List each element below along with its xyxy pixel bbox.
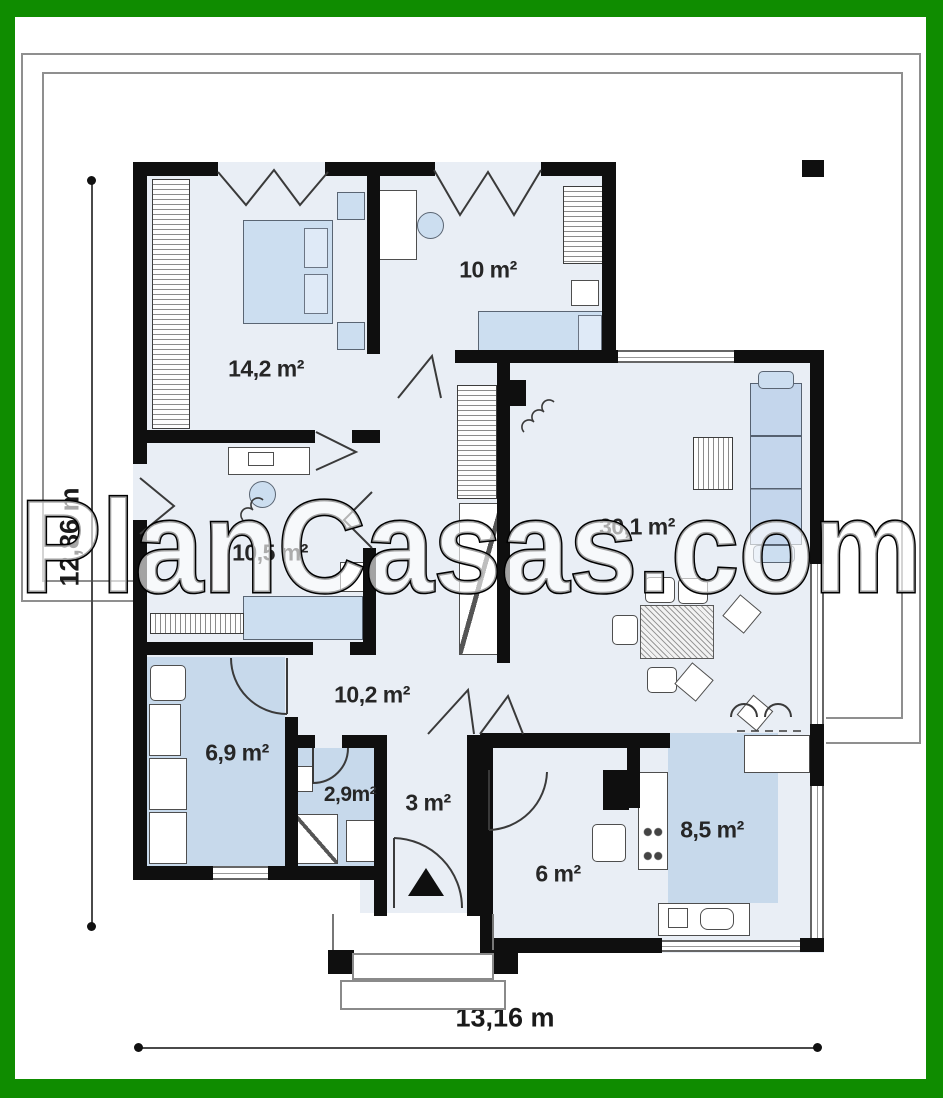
frame-top: [0, 0, 943, 17]
door-arc: [489, 770, 547, 830]
door-swing: [316, 432, 356, 470]
window-zigzag: [218, 170, 328, 205]
frame-left: [0, 0, 15, 1098]
room-label-kitchen: 8,5 m²: [680, 817, 743, 844]
room-label-bathroom: 6,9 m²: [205, 740, 268, 767]
frame-right: [926, 0, 943, 1098]
door-arc: [231, 658, 287, 714]
radiator-squiggle: [241, 498, 263, 520]
room-label-bedroom-2: 10 m²: [459, 257, 517, 284]
window-zigzag: [434, 170, 541, 215]
plan-symbols-overlay: [0, 0, 943, 1098]
frame-bottom: [0, 1079, 943, 1098]
radiator-squiggle: [522, 400, 554, 432]
room-label-bedroom-1: 14,2 m²: [228, 356, 304, 383]
room-label-vestibule: 3 m²: [405, 790, 450, 817]
bar-stool: [765, 704, 791, 717]
door-swing: [398, 356, 441, 398]
room-label-living-room: 30,1 m²: [599, 514, 675, 541]
room-label-utility: 6 m²: [535, 861, 580, 888]
room-label-hall: 10,2 m²: [334, 682, 410, 709]
bar-stool: [731, 704, 757, 717]
window-zigzag: [140, 478, 174, 534]
door-arc: [313, 748, 348, 783]
room-label-bedroom-3: 10,5 m²: [232, 540, 308, 567]
floor-plan-canvas: 12,86 m 13,16 m: [0, 0, 943, 1098]
door-arc: [394, 838, 462, 908]
door-swing: [428, 690, 474, 734]
door-swing: [480, 696, 523, 734]
door-swing: [344, 492, 372, 548]
room-label-wc: 2,9m²: [324, 783, 376, 807]
